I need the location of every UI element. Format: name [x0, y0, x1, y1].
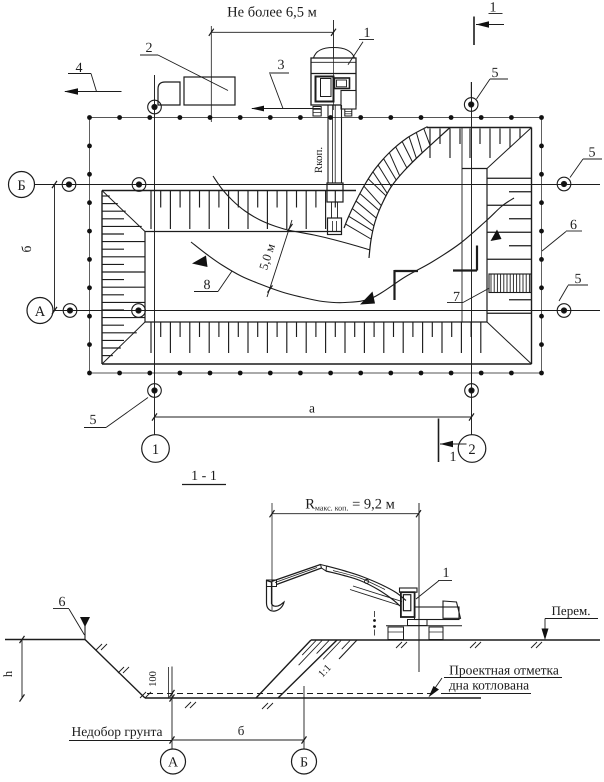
- svg-text:Не более 6,5 м: Не более 6,5 м: [227, 5, 317, 21]
- svg-text:8: 8: [204, 278, 211, 293]
- svg-text:Проектная отметка: Проектная отметка: [449, 663, 559, 678]
- svg-text:Rкоп.: Rкоп.: [313, 147, 325, 174]
- svg-text:2: 2: [146, 41, 153, 56]
- svg-text:1: 1: [152, 442, 159, 458]
- svg-text:3: 3: [278, 58, 285, 73]
- svg-text:Б: Б: [17, 178, 25, 194]
- svg-text:5,0 м: 5,0 м: [256, 242, 278, 272]
- svg-text:5: 5: [90, 413, 97, 428]
- svg-text:2: 2: [468, 442, 475, 458]
- svg-text:1: 1: [443, 566, 450, 581]
- svg-text:дна котлована: дна котлована: [449, 678, 529, 693]
- svg-text:а: а: [309, 401, 315, 416]
- svg-text:5: 5: [589, 146, 596, 161]
- svg-text:Б: Б: [300, 756, 308, 771]
- svg-text:100: 100: [148, 671, 159, 687]
- svg-text:6: 6: [59, 595, 66, 610]
- svg-text:Rмакс. коп. = 9,2 м: Rмакс. коп. = 9,2 м: [305, 497, 395, 513]
- svg-text:Недобор грунта: Недобор грунта: [71, 724, 162, 739]
- svg-text:h: h: [1, 670, 15, 677]
- svg-text:б: б: [238, 723, 245, 738]
- svg-text:Перем.: Перем.: [552, 603, 591, 618]
- svg-text:1: 1: [364, 26, 371, 41]
- svg-text:1:1: 1:1: [317, 663, 334, 680]
- svg-text:б: б: [19, 245, 34, 252]
- svg-text:А: А: [35, 304, 46, 320]
- svg-text:1 - 1: 1 - 1: [191, 469, 217, 484]
- svg-text:1: 1: [450, 450, 457, 465]
- svg-text:А: А: [168, 756, 179, 771]
